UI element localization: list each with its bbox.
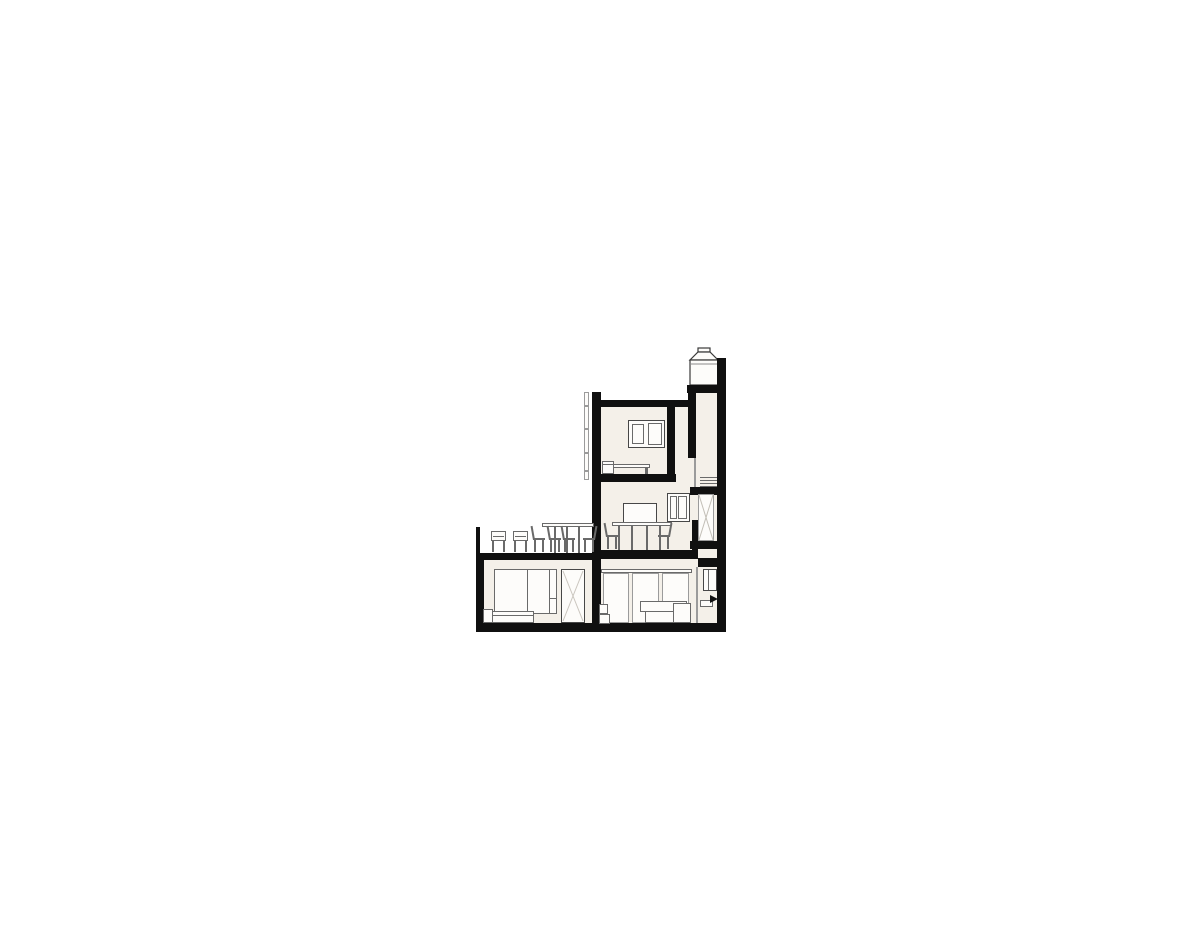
entry-arrow-icon <box>710 595 718 603</box>
glazed-door-diagonals <box>561 569 585 623</box>
beam-entry <box>698 558 717 567</box>
stair-wall-line <box>694 458 696 487</box>
wall-right <box>717 358 726 632</box>
wall-bedroom-right <box>667 407 675 482</box>
stair-tread <box>700 480 717 481</box>
slab-terrace <box>476 553 598 560</box>
wardrobe-lower-unit <box>549 598 557 614</box>
slab-dining-floor <box>592 550 698 559</box>
terrace-parapet <box>476 527 480 555</box>
ladder-rung <box>584 428 589 430</box>
tv-panel <box>623 503 657 523</box>
stair-tread <box>700 486 717 487</box>
terrace-chair <box>561 526 577 552</box>
terrace-chair <box>581 526 597 552</box>
ladder-rung <box>584 452 589 454</box>
dining-chair <box>604 523 620 549</box>
picture-pane-right <box>648 423 662 445</box>
stair-top-fill <box>696 391 717 405</box>
upper-nightstand-line <box>603 464 613 465</box>
entry-window-mullion <box>708 570 709 590</box>
dining-window-pane-left <box>670 496 677 519</box>
slab-ground <box>476 623 726 632</box>
side-cabinet-base <box>599 614 610 624</box>
ladder-rung <box>584 470 589 472</box>
ground-bed <box>492 611 534 623</box>
chimney-icon <box>687 346 721 388</box>
lounge-chair <box>513 531 530 553</box>
terrace-table-leg <box>578 527 580 553</box>
wall-flue <box>688 388 696 458</box>
ground-bed-line <box>493 615 533 616</box>
lounge-chair <box>491 531 508 553</box>
wardrobe-divider <box>527 570 528 613</box>
wardrobe <box>494 569 557 614</box>
sofa-arm <box>673 603 691 623</box>
dining-table-leg <box>646 526 648 550</box>
stair-tread <box>700 483 717 484</box>
picture-pane-left <box>632 424 644 444</box>
slab-tower-roof <box>592 400 694 407</box>
side-cabinet-top <box>599 604 608 614</box>
dining-table-leg <box>631 526 633 550</box>
stair-glass-diagonals <box>698 494 714 541</box>
building-section-drawing <box>0 0 1200 936</box>
entry-window-frame <box>703 569 717 591</box>
terrace-chair <box>531 526 547 552</box>
stair-tread <box>700 477 717 478</box>
upper-bed-leg <box>645 468 648 474</box>
dining-window-pane-right <box>678 496 687 519</box>
ladder-rung <box>584 405 589 407</box>
slab-bedroom-floor <box>592 474 676 482</box>
page-canvas <box>0 0 1200 936</box>
wall-tower-left <box>592 392 601 623</box>
living-entry-divider-line <box>696 567 698 623</box>
dining-chair <box>656 523 672 549</box>
sofa-seat <box>645 611 674 623</box>
